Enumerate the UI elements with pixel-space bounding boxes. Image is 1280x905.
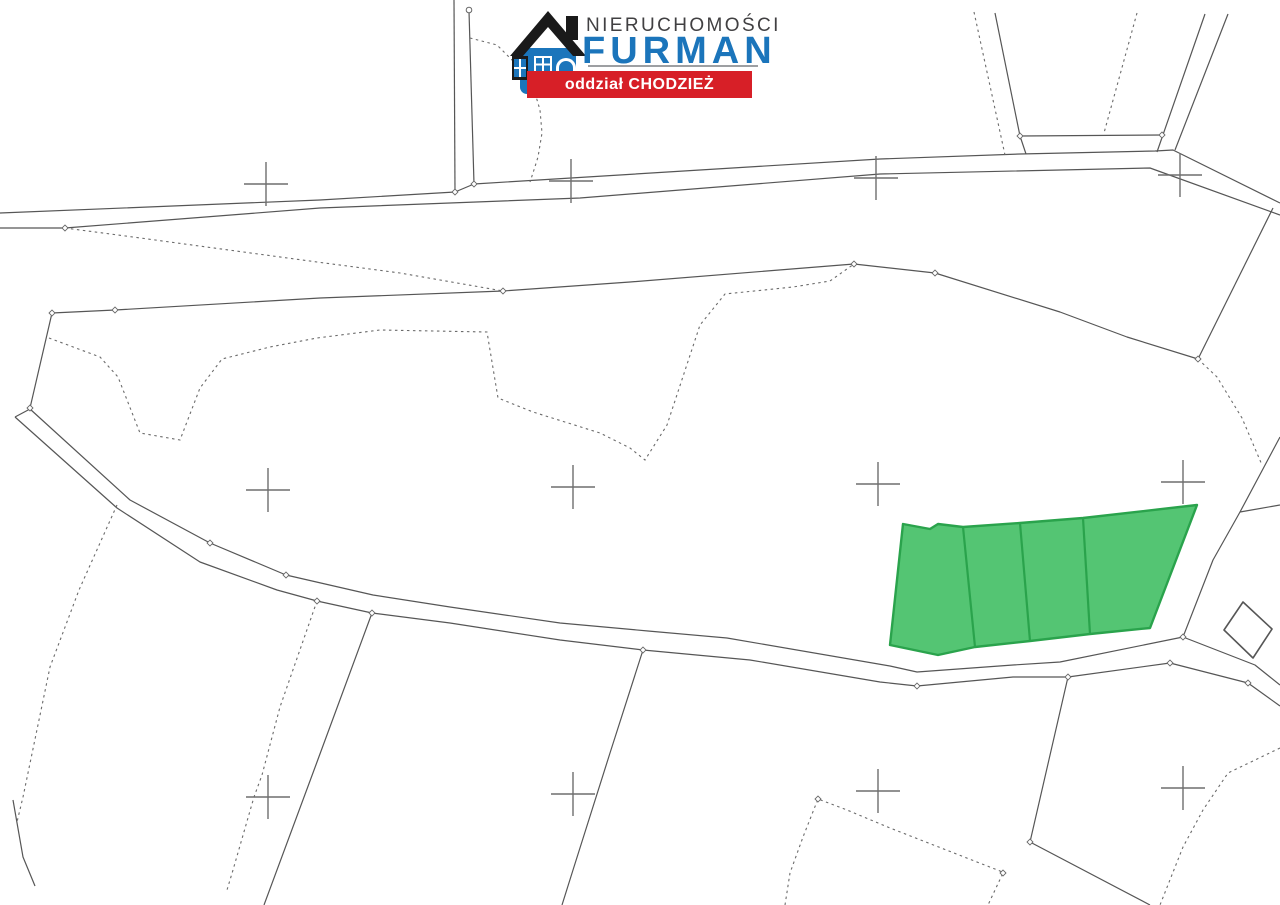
cadastral-map-page: NIERUCHOMOŚCI FURMAN oddział CHODZIEŻ <box>0 0 1280 905</box>
logo-banner: oddział CHODZIEŻ <box>527 71 752 98</box>
logo-line2: FURMAN <box>582 30 766 68</box>
logo-underline <box>588 65 758 67</box>
logo-banner-text: oddział CHODZIEŻ <box>565 76 714 94</box>
map-canvas <box>0 0 1280 905</box>
boundary-circle-marker <box>466 7 472 13</box>
agency-logo: NIERUCHOMOŚCI FURMAN oddział CHODZIEŻ <box>510 4 770 100</box>
